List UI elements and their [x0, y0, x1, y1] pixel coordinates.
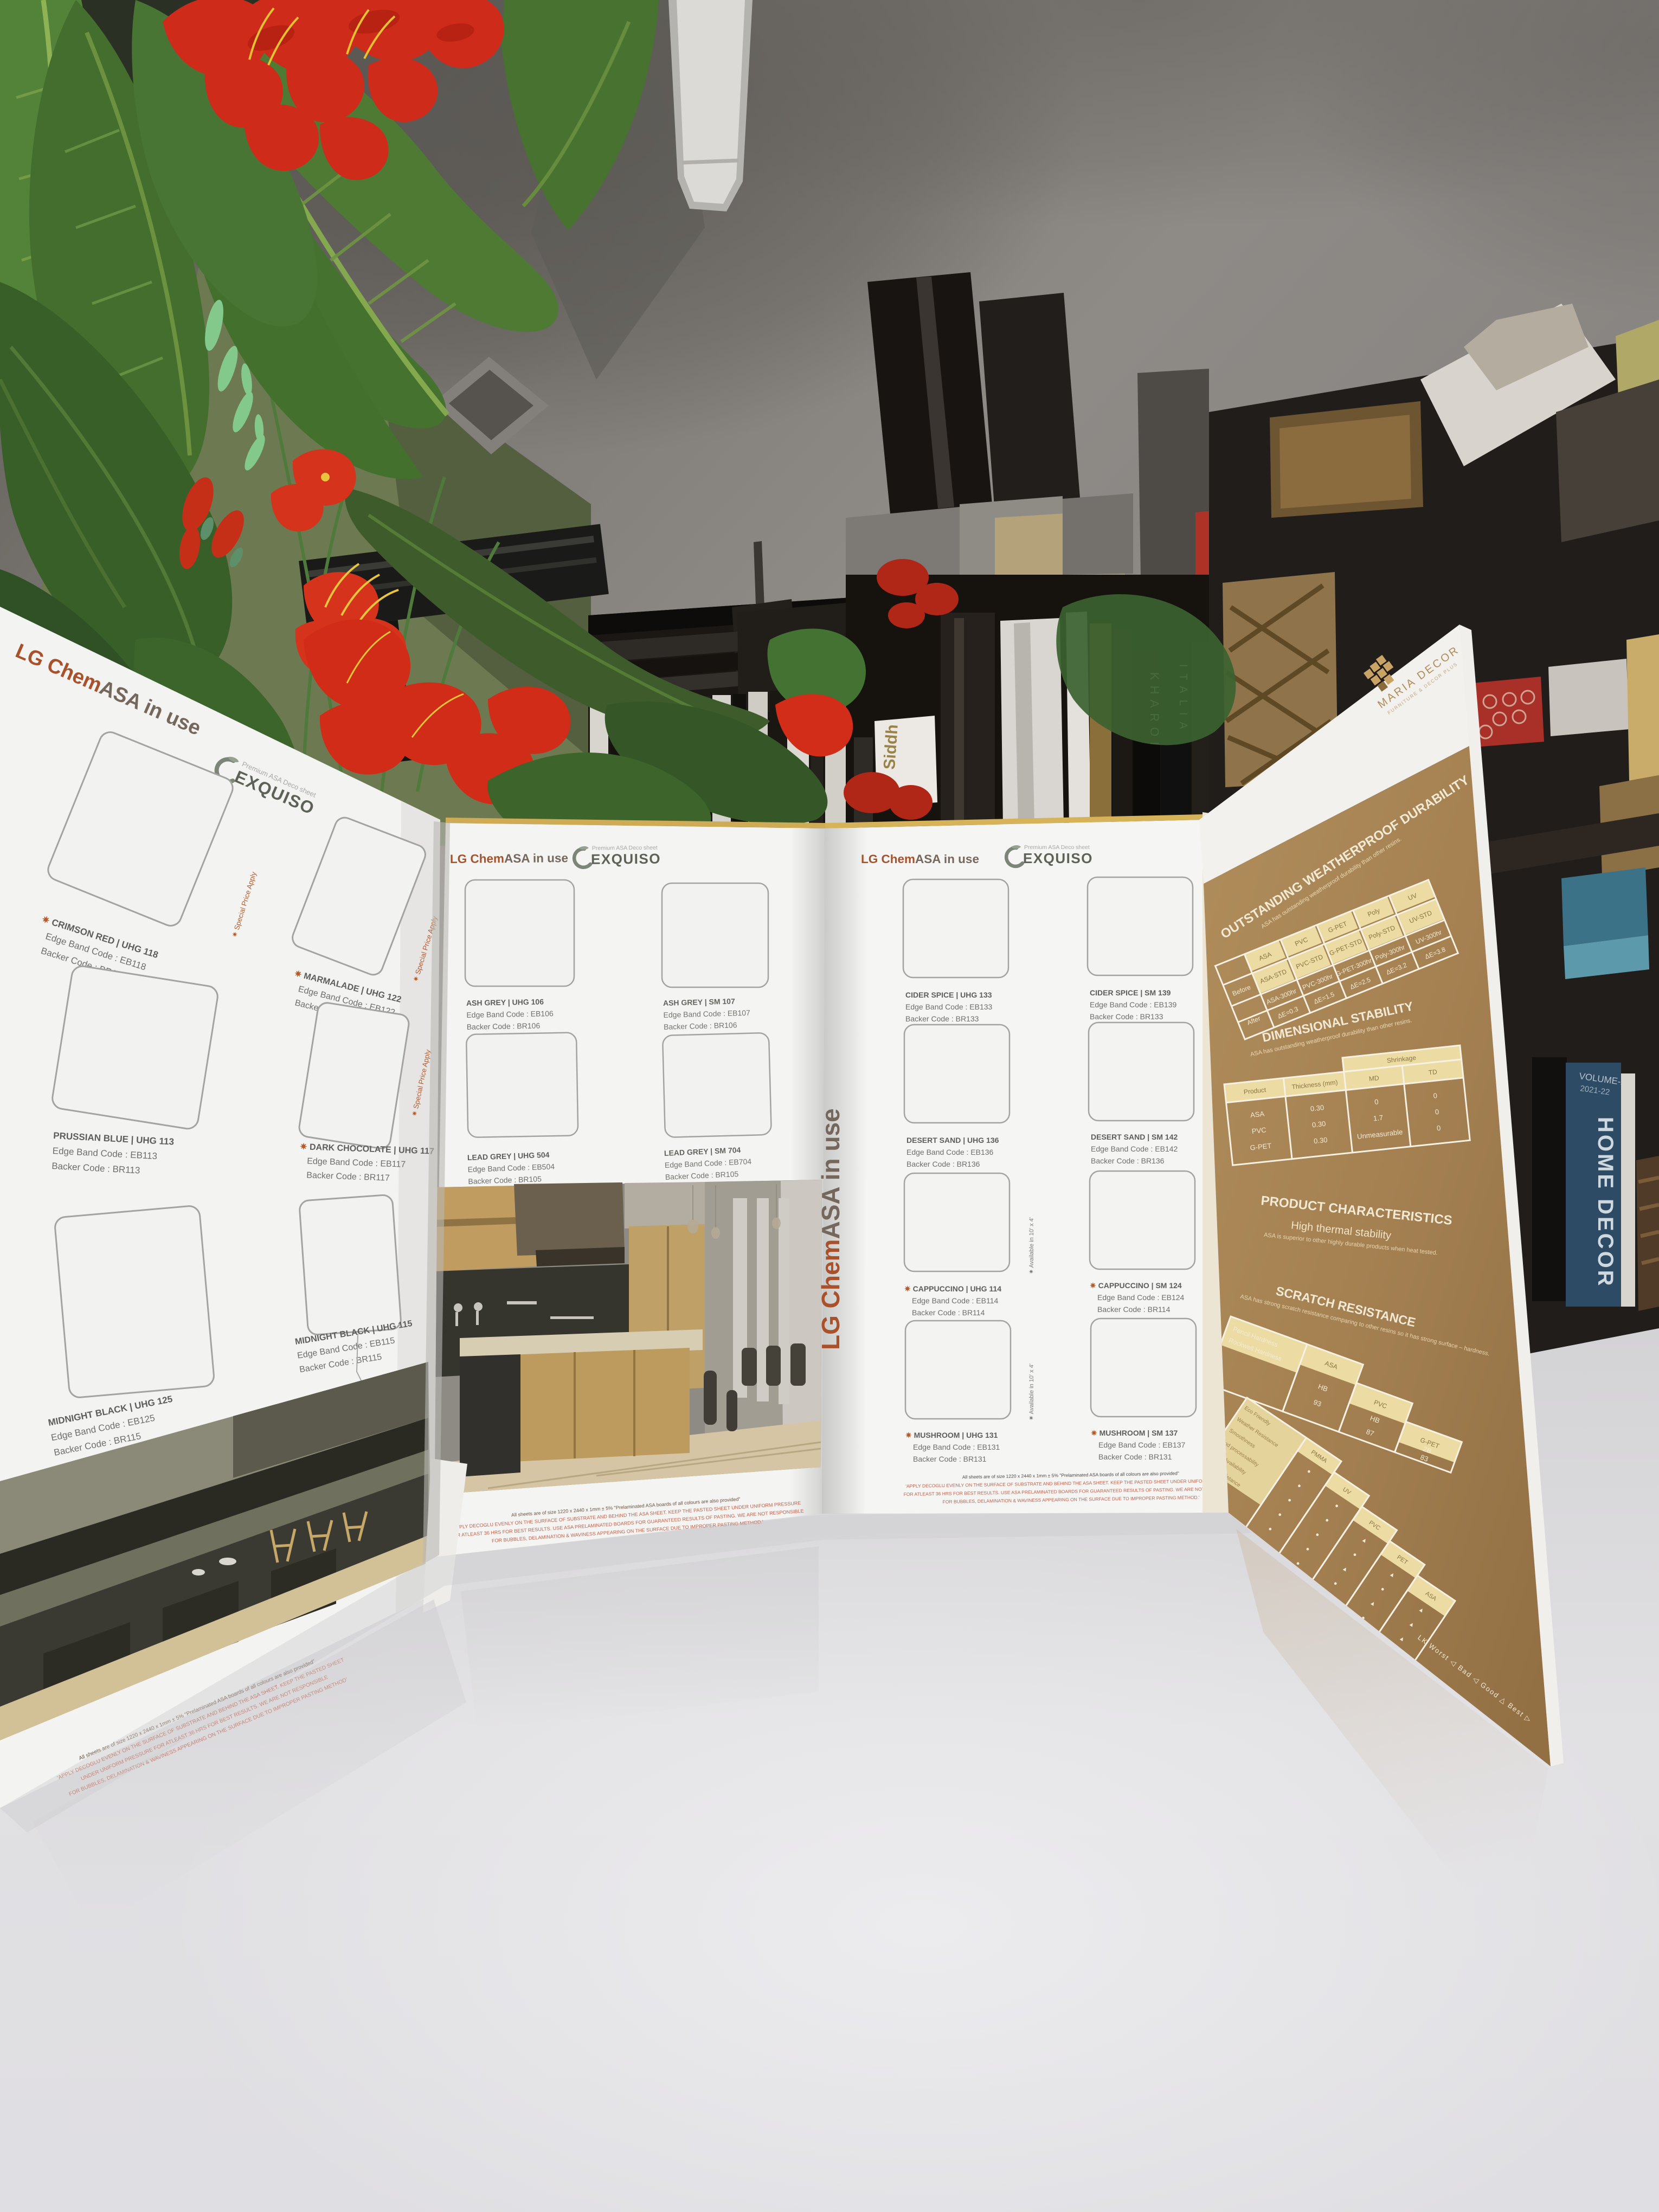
- svg-text:Edge Band Code : EB137: Edge Band Code : EB137: [1098, 1441, 1186, 1449]
- svg-text:Edge Band Code : EB106: Edge Band Code : EB106: [466, 1009, 554, 1019]
- svg-text:Edge Band Code : EB136: Edge Band Code : EB136: [906, 1148, 994, 1156]
- svg-text:Edge Band Code : EB114: Edge Band Code : EB114: [912, 1296, 999, 1305]
- svg-text:ASH GREY | UHG 106: ASH GREY | UHG 106: [466, 998, 544, 1007]
- svg-text:Edge Band Code : EB142: Edge Band Code : EB142: [1091, 1144, 1178, 1153]
- svg-text:ASA: ASA: [1250, 1110, 1265, 1120]
- svg-text:CIDER SPICE | UHG 133: CIDER SPICE | UHG 133: [905, 991, 992, 999]
- svg-text:0: 0: [1433, 1091, 1438, 1100]
- svg-text:0: 0: [1435, 1108, 1439, 1116]
- svg-text:Backer Code : BR131: Backer Code : BR131: [1098, 1452, 1172, 1461]
- svg-text:MD: MD: [1368, 1074, 1379, 1083]
- svg-text:HOME DECOR: HOME DECOR: [1593, 1117, 1617, 1288]
- svg-text:LG ChemASA in use: LG ChemASA in use: [861, 852, 979, 866]
- svg-text:✷ MUSHROOM | SM 137: ✷ MUSHROOM | SM 137: [1091, 1429, 1178, 1437]
- svg-text:Backer Code : BR131: Backer Code : BR131: [913, 1455, 987, 1463]
- svg-text:Backer Code : BR133: Backer Code : BR133: [1090, 1012, 1163, 1021]
- svg-text:✷ MUSHROOM | UHG 131: ✷ MUSHROOM | UHG 131: [905, 1431, 998, 1439]
- svg-text:1.7: 1.7: [1373, 1114, 1384, 1123]
- svg-text:✷ CAPPUCCINO | UHG 114: ✷ CAPPUCCINO | UHG 114: [904, 1284, 1001, 1293]
- svg-text:0: 0: [1374, 1097, 1379, 1106]
- svg-text:0.30: 0.30: [1311, 1120, 1326, 1129]
- svg-text:Backer Code : BR136: Backer Code : BR136: [906, 1160, 980, 1168]
- svg-text:Edge Band Code : EB133: Edge Band Code : EB133: [905, 1002, 993, 1011]
- svg-text:Backer Code : BR114: Backer Code : BR114: [1097, 1305, 1171, 1314]
- svg-text:Edge Band Code : EB124: Edge Band Code : EB124: [1097, 1293, 1185, 1302]
- svg-text:DESERT SAND | UHG 136: DESERT SAND | UHG 136: [906, 1136, 999, 1144]
- svg-text:LG ChemASA in use: LG ChemASA in use: [816, 1108, 845, 1350]
- svg-text:Siddh: Siddh: [880, 724, 902, 770]
- svg-text:CIDER SPICE | SM 139: CIDER SPICE | SM 139: [1090, 988, 1171, 997]
- svg-text:Edge Band Code : EB131: Edge Band Code : EB131: [913, 1443, 1000, 1451]
- svg-text:0.30: 0.30: [1313, 1136, 1328, 1146]
- svg-text:DESERT SAND | SM 142: DESERT SAND | SM 142: [1091, 1133, 1178, 1141]
- svg-text:Backer Code : BR114: Backer Code : BR114: [912, 1308, 985, 1317]
- svg-text:Edge Band Code : EB139: Edge Band Code : EB139: [1090, 1000, 1177, 1009]
- svg-text:Backer Code : BR136: Backer Code : BR136: [1091, 1156, 1165, 1165]
- svg-text:PVC: PVC: [1251, 1126, 1266, 1135]
- svg-text:Backer Code : BR106: Backer Code : BR106: [467, 1021, 541, 1031]
- svg-text:✷ Available in 10' x 4': ✷ Available in 10' x 4': [1028, 1217, 1035, 1274]
- svg-text:LG ChemASA in use: LG ChemASA in use: [450, 851, 568, 866]
- svg-text:Backer Code : BR133: Backer Code : BR133: [905, 1014, 979, 1023]
- svg-text:✷ Available in 10' x 4': ✷ Available in 10' x 4': [1028, 1364, 1035, 1420]
- svg-text:0.30: 0.30: [1310, 1103, 1324, 1113]
- svg-text:0: 0: [1436, 1124, 1441, 1133]
- svg-text:✷ CAPPUCCINO | SM 124: ✷ CAPPUCCINO | SM 124: [1090, 1281, 1182, 1290]
- svg-text:TD: TD: [1428, 1068, 1438, 1077]
